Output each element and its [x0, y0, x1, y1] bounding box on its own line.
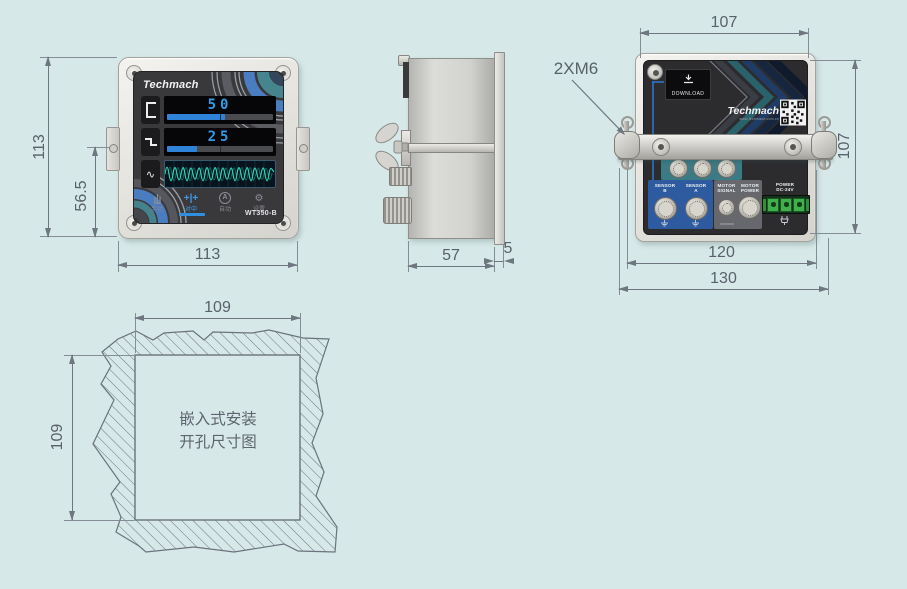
side-front-flange — [494, 52, 505, 245]
brand-logo: Techmach — [143, 79, 199, 91]
bracket-screw-icon — [784, 138, 802, 156]
display-row-offset: 25 — [141, 128, 276, 156]
dim-back-overall-width-label: 130 — [619, 271, 828, 287]
dim-front-height-label: 113 — [32, 125, 48, 169]
decor-mark — [720, 223, 734, 225]
leader-line — [570, 78, 632, 142]
connector-other — [693, 159, 712, 178]
wave-icon: ∿ — [141, 160, 160, 188]
download-icon — [683, 74, 694, 84]
menu-item-centering: +|+ 对中 — [175, 192, 207, 214]
connector-serial — [717, 159, 736, 178]
arrow-icon — [484, 258, 494, 264]
dim-front-height — [48, 57, 49, 237]
port-group-sensor: SENSOR B SENSOR A — [648, 180, 713, 229]
ground-icon — [691, 220, 700, 227]
edge-sensor-icon — [141, 96, 160, 124]
ground-icon — [660, 220, 669, 227]
dim-front-bracket — [95, 147, 96, 237]
progress-track — [167, 146, 273, 152]
arrow-icon — [504, 258, 514, 264]
port-group-motor: MOTOR SIGNAL MOTOR POWER — [714, 180, 762, 229]
extension-line — [87, 147, 109, 148]
drawing-canvas: Techmach 50 25 — [0, 0, 907, 589]
connector-motor-power — [738, 196, 761, 219]
dim-side-depth — [408, 266, 494, 267]
port-label-sensor-b: SENSOR B — [650, 183, 680, 194]
display-row-waveform: ∿ — [141, 160, 276, 188]
extension-line — [816, 170, 817, 269]
bolt-note-label: 2XM6 — [549, 60, 603, 77]
cutout-caption: 嵌入式安装 开孔尺寸图 — [140, 408, 296, 455]
progress-fill — [167, 114, 225, 120]
value-box-top: 50 — [164, 96, 276, 124]
dim-cutout-height — [72, 355, 73, 520]
active-menu-underline — [179, 213, 205, 216]
step-edge-icon — [141, 128, 160, 156]
side-connector-small — [389, 167, 412, 186]
dim-back-overall-width — [619, 289, 828, 290]
power-terminal-block — [762, 195, 810, 214]
download-port: DOWNLOAD — [665, 69, 711, 100]
side-connector-large — [383, 197, 412, 224]
value-top: 50 — [164, 97, 276, 113]
port-label-sensor-a: SENSOR A — [681, 183, 711, 194]
dim-cutout-height-label: 109 — [50, 415, 66, 459]
dim-front-bracket-label: 56.5 — [74, 174, 90, 218]
side-bracket-bar — [408, 143, 496, 153]
wing-bolt-knob-right — [811, 131, 837, 159]
value-box-bottom: 25 — [164, 128, 276, 156]
progress-fill — [167, 146, 197, 152]
dim-front-width-label: 113 — [118, 247, 297, 263]
port-label-power: POWER DC-24V — [762, 182, 808, 193]
gear-icon: ⚙ — [243, 192, 275, 206]
wing-nut-icon — [374, 120, 408, 174]
decor-blue-line — [652, 81, 664, 83]
qr-code — [780, 99, 806, 126]
bracket-screw-icon — [652, 138, 670, 156]
dim-front-width — [118, 265, 297, 266]
dim-side-depth-label: 57 — [408, 248, 494, 264]
mount-tab-right — [296, 127, 310, 171]
port-label-motor-power: MOTOR POWER — [739, 183, 761, 194]
hand-icon — [141, 192, 173, 206]
front-screen: Techmach 50 25 — [133, 71, 284, 224]
model-label: WT350-B — [245, 210, 277, 217]
dim-back-bracket-width-label: 120 — [627, 245, 816, 261]
progress-track — [167, 114, 273, 120]
value-bottom: 25 — [164, 129, 276, 145]
menu-item-manual: 手动 — [141, 192, 173, 214]
dim-back-height-label: 107 — [837, 124, 853, 168]
extension-line — [40, 236, 117, 237]
display-row-position: 50 — [141, 96, 276, 124]
side-rail — [403, 62, 409, 98]
connector-io — [669, 159, 688, 178]
panel-screw-icon — [647, 64, 663, 80]
plug-icon — [779, 215, 790, 226]
dim-back-mount-width-label: 107 — [640, 15, 808, 31]
dim-back-bracket-width — [627, 263, 816, 264]
centering-icon: +|+ — [175, 192, 207, 206]
dim-back-height — [855, 60, 856, 233]
dim-side-flange-label: 5 — [498, 241, 518, 257]
menu-item-auto: A 自动 — [209, 192, 241, 214]
connector-sensor-a — [685, 197, 708, 220]
website-text: www.techmach.com.cn — [713, 117, 779, 121]
waveform-display — [164, 160, 276, 188]
dim-cutout-width — [135, 318, 300, 319]
dim-cutout-width-label: 109 — [135, 300, 300, 316]
dim-back-mount-width — [640, 33, 808, 34]
port-label-motor-signal: MOTOR SIGNAL — [715, 183, 738, 194]
connector-sensor-b — [654, 197, 677, 220]
connector-motor-signal — [718, 199, 735, 216]
mount-tab-left — [106, 127, 120, 171]
brand-logo: Techmach — [713, 105, 779, 117]
dim-side-flange — [494, 261, 503, 262]
extension-line — [40, 57, 117, 58]
auto-icon: A — [209, 192, 241, 206]
